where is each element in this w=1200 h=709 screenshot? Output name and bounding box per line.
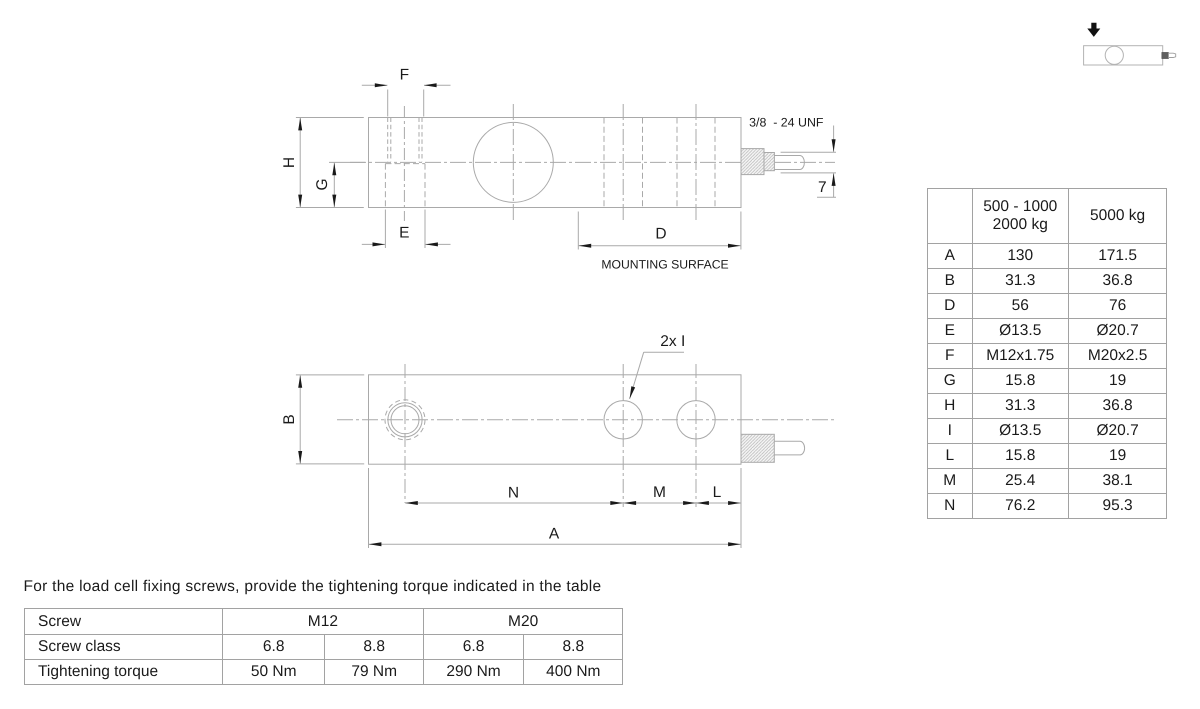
svg-text:7: 7 [818,179,827,196]
svg-text:2x I: 2x I [660,333,685,350]
svg-text:MOUNTING SURFACE: MOUNTING SURFACE [601,258,728,272]
svg-text:D: D [655,226,666,243]
svg-text:G: G [314,178,331,190]
svg-text:F: F [400,66,409,83]
svg-text:A: A [549,525,560,542]
svg-text:B: B [281,414,298,424]
svg-text:E: E [399,224,409,241]
svg-text:3/8 - 24 UNF: 3/8 - 24 UNF [749,116,824,130]
svg-text:H: H [281,157,298,168]
svg-text:M: M [653,484,666,501]
svg-text:N: N [508,485,519,502]
svg-text:L: L [713,484,722,501]
